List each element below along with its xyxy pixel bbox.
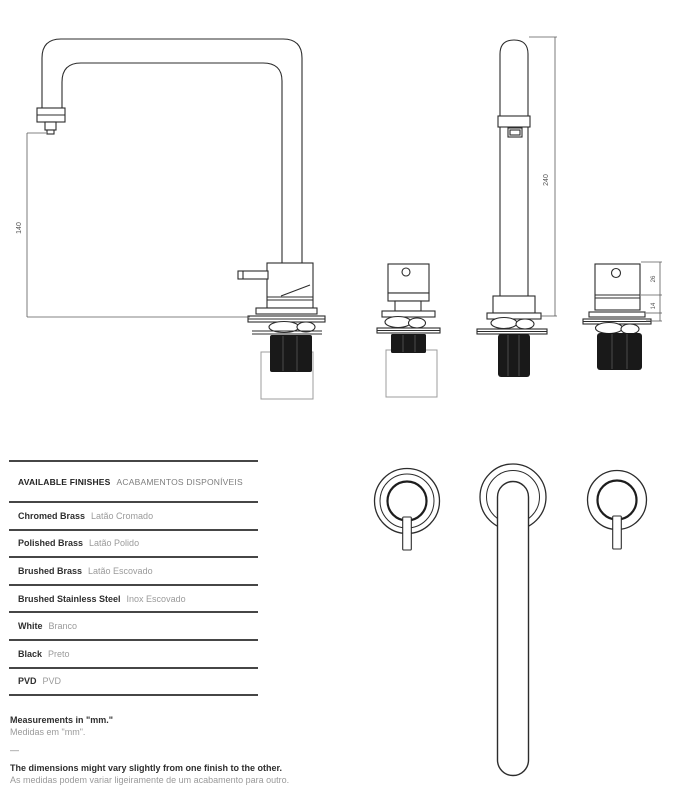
finishes-table: AVAILABLE FINISHES ACABAMENTOS DISPONÍVE… bbox=[9, 460, 258, 696]
finish-name-pt: Preto bbox=[48, 649, 70, 659]
finishes-header-en: AVAILABLE FINISHES bbox=[18, 477, 111, 487]
finish-row-black: Black Preto bbox=[9, 641, 258, 669]
finish-name-pt: Inox Escovado bbox=[127, 594, 186, 604]
plan-spout bbox=[480, 464, 546, 776]
plan-left-handle bbox=[375, 469, 440, 551]
tolerance-note-pt: As medidas podem variar ligeiramente de … bbox=[10, 774, 340, 786]
dimension-14-label: 14 bbox=[651, 302, 657, 309]
finish-row-polished-brass: Polished Brass Latão Polido bbox=[9, 531, 258, 559]
measurements-note-pt: Medidas em "mm". bbox=[10, 726, 340, 738]
finish-row-white: White Branco bbox=[9, 613, 258, 641]
tolerance-note-en: The dimensions might vary slightly from … bbox=[10, 762, 340, 774]
finish-name-pt: PVD bbox=[43, 676, 62, 686]
finish-row-chromed-brass: Chromed Brass Latão Cromado bbox=[9, 503, 258, 531]
finish-row-brushed-brass: Brushed Brass Latão Escovado bbox=[9, 558, 258, 586]
finish-name-en: Polished Brass bbox=[18, 538, 83, 548]
dimension-240-label: 240 bbox=[543, 174, 550, 186]
finish-name-en: White bbox=[18, 621, 43, 631]
spec-sheet-page: 140 bbox=[0, 0, 678, 800]
finish-name-en: Brushed Brass bbox=[18, 566, 82, 576]
finish-name-pt: Latão Polido bbox=[89, 538, 139, 548]
finishes-header-pt: ACABAMENTOS DISPONÍVEIS bbox=[117, 477, 243, 487]
front-valve-drawing: 26 14 bbox=[583, 262, 662, 370]
finish-name-pt: Latão Cromado bbox=[91, 511, 153, 521]
finish-row-brushed-stainless-steel: Brushed Stainless Steel Inox Escovado bbox=[9, 586, 258, 614]
notes-divider: — bbox=[10, 744, 340, 756]
technical-drawings: 140 bbox=[0, 0, 678, 435]
dimension-26-label: 26 bbox=[651, 275, 657, 282]
plan-view-drawing bbox=[365, 450, 678, 800]
finish-row-pvd: PVD PVD bbox=[9, 669, 258, 697]
front-view-spout-drawing: 240 bbox=[477, 37, 557, 377]
measurements-note-en: Measurements in "mm." bbox=[10, 714, 340, 726]
finish-name-en: Chromed Brass bbox=[18, 511, 85, 521]
finish-name-en: PVD bbox=[18, 676, 37, 686]
plan-right-handle bbox=[588, 471, 647, 550]
side-view-faucet-drawing: 140 bbox=[16, 39, 325, 399]
finish-name-pt: Latão Escovado bbox=[88, 566, 153, 576]
finish-name-pt: Branco bbox=[49, 621, 78, 631]
finish-name-en: Black bbox=[18, 649, 42, 659]
finish-name-en: Brushed Stainless Steel bbox=[18, 594, 121, 604]
finishes-table-header: AVAILABLE FINISHES ACABAMENTOS DISPONÍVE… bbox=[9, 462, 258, 503]
notes-section: Measurements in "mm." Medidas em "mm". —… bbox=[10, 714, 340, 786]
dimension-140-label: 140 bbox=[16, 222, 23, 234]
side-valve-drawing bbox=[377, 264, 440, 397]
